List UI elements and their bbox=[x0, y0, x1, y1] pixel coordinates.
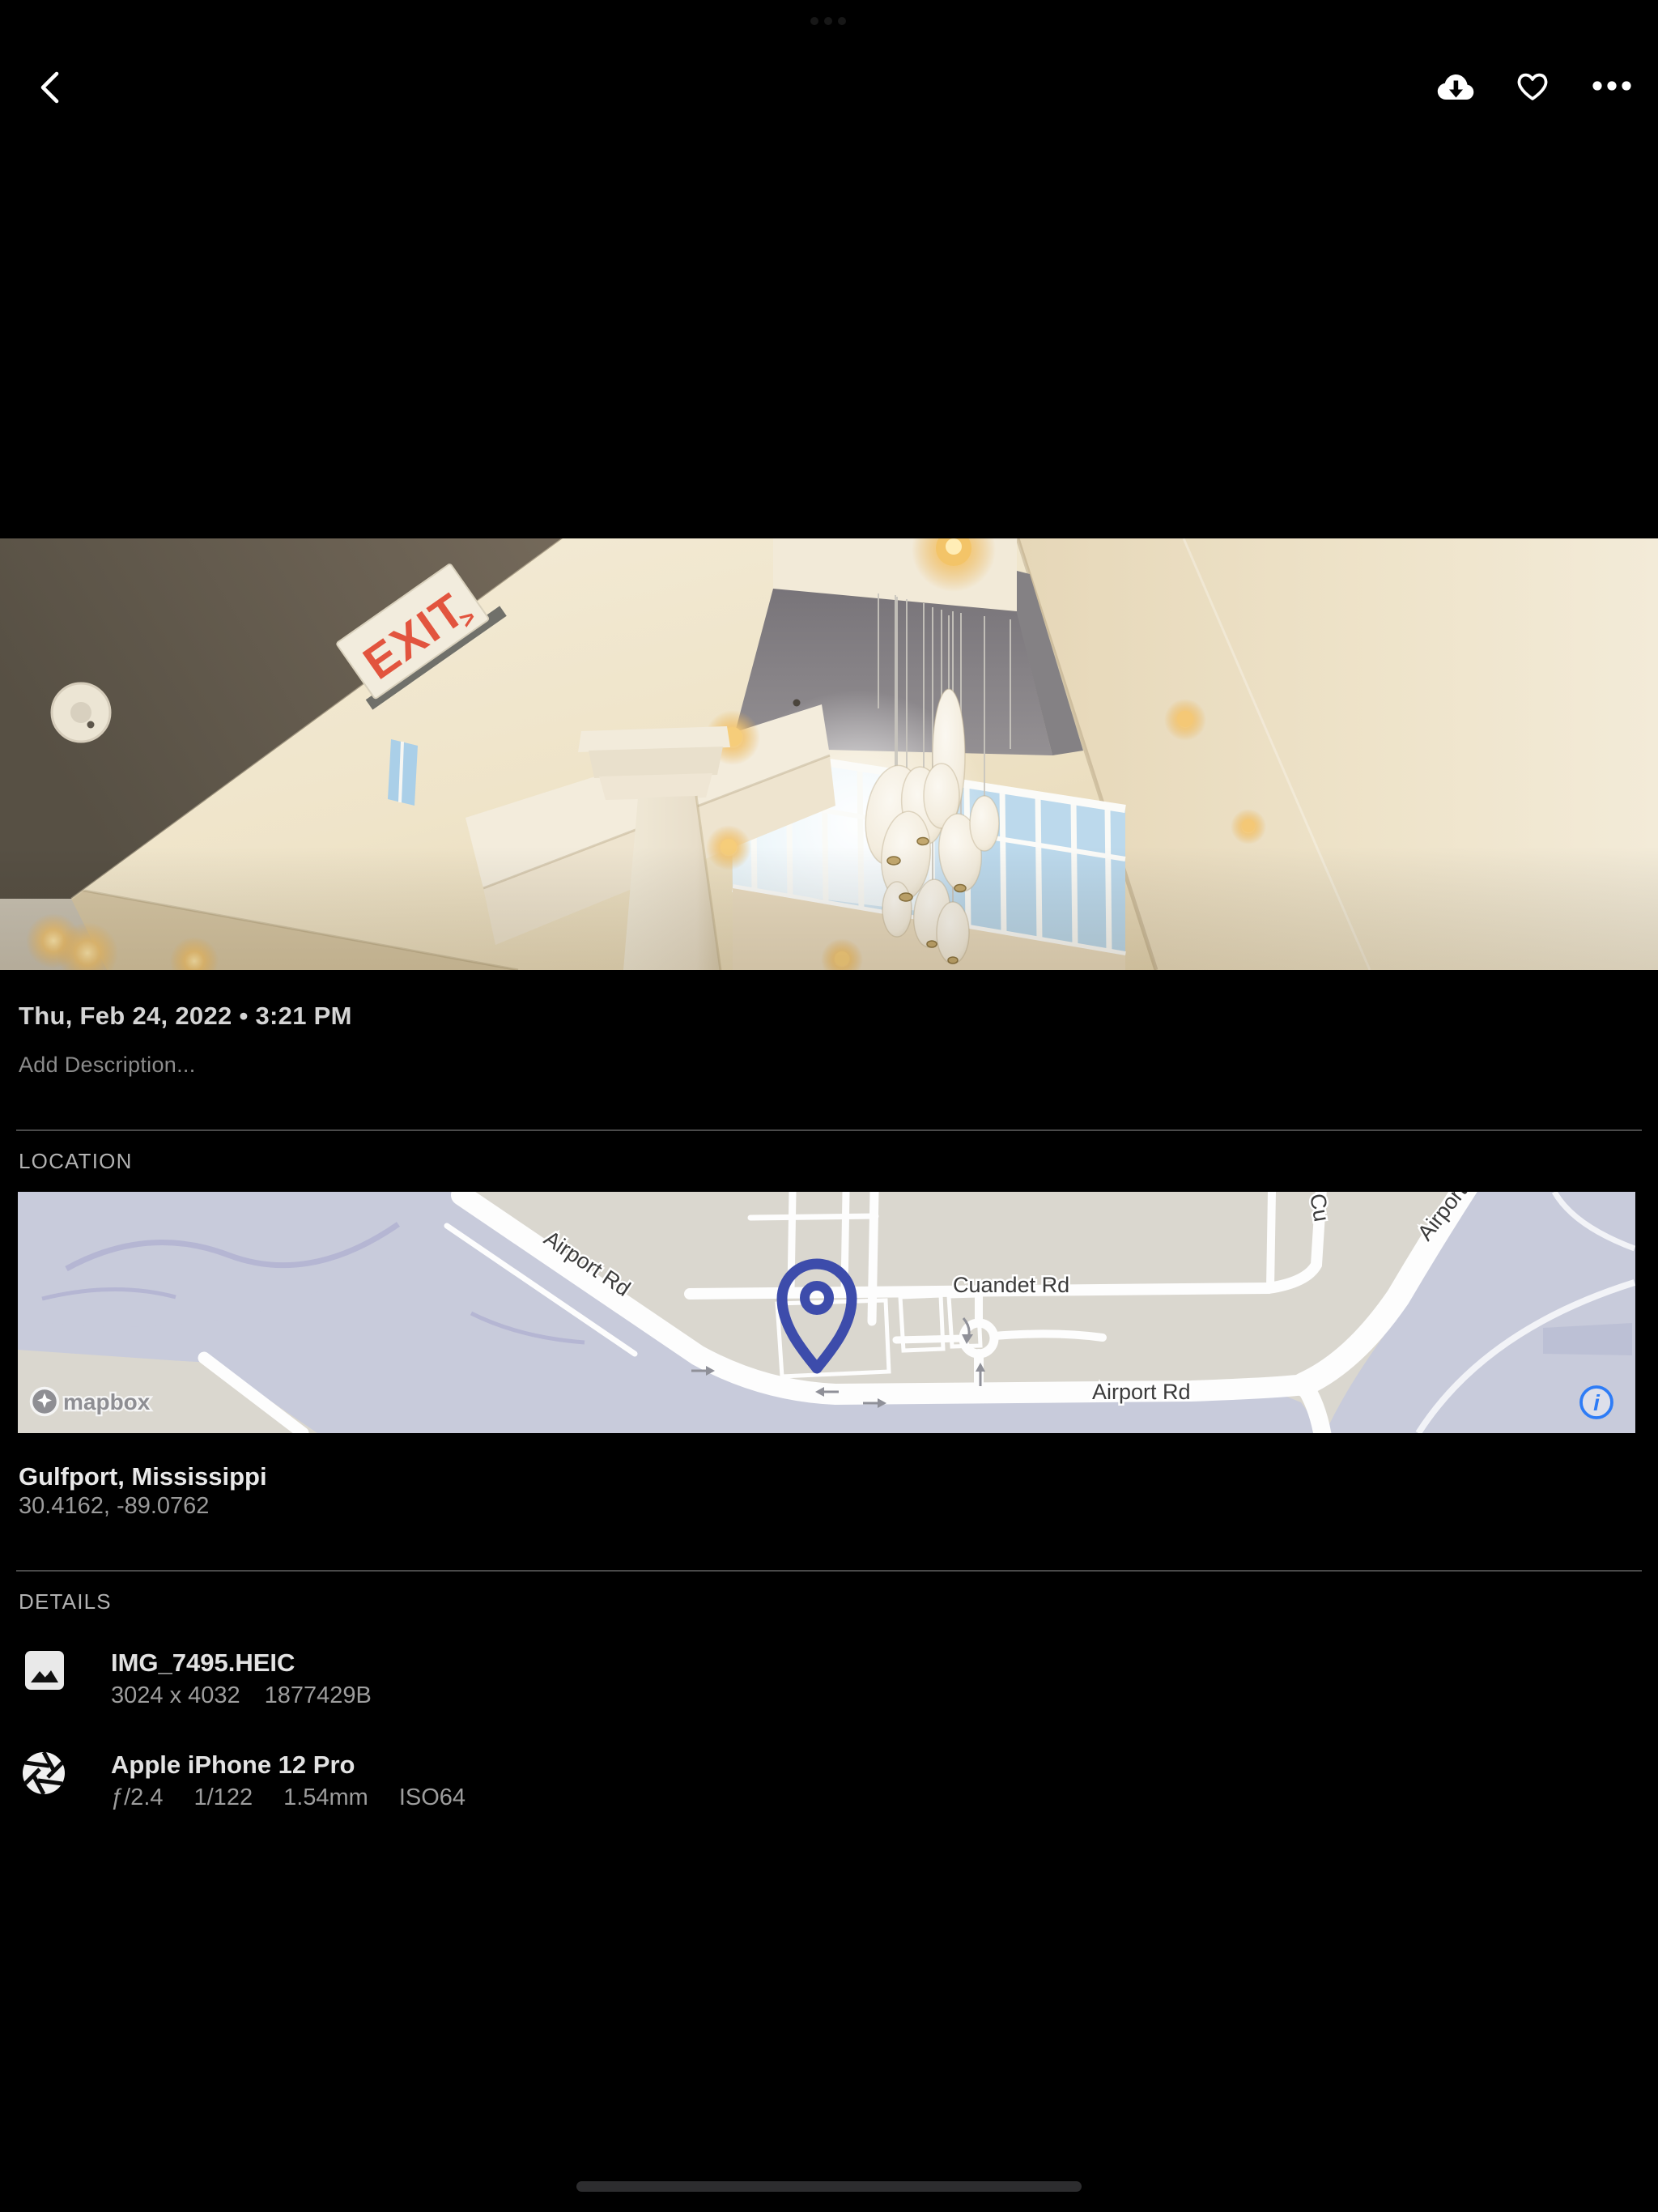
svg-text:mapbox: mapbox bbox=[63, 1389, 151, 1414]
file-detail-row: IMG_7495.HEIC 3024 x 4032 1877429B bbox=[0, 1644, 1658, 1733]
add-description-field[interactable]: Add Description... bbox=[19, 1053, 196, 1078]
multitask-indicator-icon bbox=[810, 17, 846, 25]
camera-focal-length: 1.54mm bbox=[283, 1784, 368, 1811]
location-section-label: LOCATION bbox=[19, 1149, 133, 1174]
location-map[interactable]: Airport Rd Cuandet Rd Airport Rd Airport… bbox=[18, 1192, 1635, 1433]
camera-shutter: 1/122 bbox=[194, 1784, 253, 1811]
map-image: Airport Rd Cuandet Rd Airport Rd Airport… bbox=[18, 1192, 1635, 1433]
info-icon: i bbox=[1593, 1390, 1601, 1415]
camera-aperture: ƒ/2.4 bbox=[111, 1784, 164, 1811]
home-indicator[interactable] bbox=[576, 2181, 1082, 2192]
camera-iso: ISO64 bbox=[399, 1784, 466, 1811]
file-size: 1877429B bbox=[265, 1682, 372, 1709]
divider bbox=[16, 1129, 1642, 1131]
camera-aperture-icon bbox=[21, 1750, 66, 1796]
camera-meta: ƒ/2.4 1/122 1.54mm ISO64 bbox=[111, 1784, 466, 1811]
photo-image: EXIT > bbox=[0, 538, 1658, 970]
details-section-label: DETAILS bbox=[19, 1589, 112, 1614]
more-options-button[interactable] bbox=[1587, 66, 1640, 105]
cloud-download-icon bbox=[1431, 68, 1480, 105]
photo-datetime: Thu, Feb 24, 2022 • 3:21 PM bbox=[19, 1002, 352, 1031]
location-coordinates: 30.4162, -89.0762 bbox=[19, 1493, 209, 1520]
map-info-button[interactable]: i bbox=[1581, 1387, 1612, 1418]
map-label-road-fragment: Cu bbox=[1305, 1192, 1334, 1223]
file-dimensions: 3024 x 4032 bbox=[111, 1682, 240, 1709]
heart-icon bbox=[1513, 66, 1552, 105]
mapbox-logo[interactable]: mapbox bbox=[32, 1389, 151, 1415]
favorite-button[interactable] bbox=[1513, 66, 1552, 105]
photo-viewer[interactable]: EXIT > bbox=[0, 538, 1658, 970]
camera-name: Apple iPhone 12 Pro bbox=[111, 1750, 355, 1780]
file-meta: 3024 x 4032 1877429B bbox=[111, 1682, 372, 1709]
camera-detail-row: Apple iPhone 12 Pro ƒ/2.4 1/122 1.54mm I… bbox=[0, 1746, 1658, 1835]
download-button[interactable] bbox=[1431, 68, 1480, 105]
chevron-left-icon bbox=[32, 66, 71, 105]
map-label-airport-rd: Airport Rd bbox=[1092, 1380, 1191, 1404]
ellipsis-icon bbox=[1587, 66, 1640, 105]
map-label-cuandet-rd: Cuandet Rd bbox=[953, 1273, 1069, 1297]
divider bbox=[16, 1570, 1642, 1572]
asset-detail-screen: EXIT > Thu, Feb 24, 2022 • 3:21 PM Add D… bbox=[0, 0, 1658, 2212]
image-file-icon bbox=[24, 1650, 65, 1691]
back-button[interactable] bbox=[32, 66, 71, 105]
location-place: Gulfport, Mississippi bbox=[19, 1462, 267, 1491]
file-name: IMG_7495.HEIC bbox=[111, 1648, 295, 1678]
